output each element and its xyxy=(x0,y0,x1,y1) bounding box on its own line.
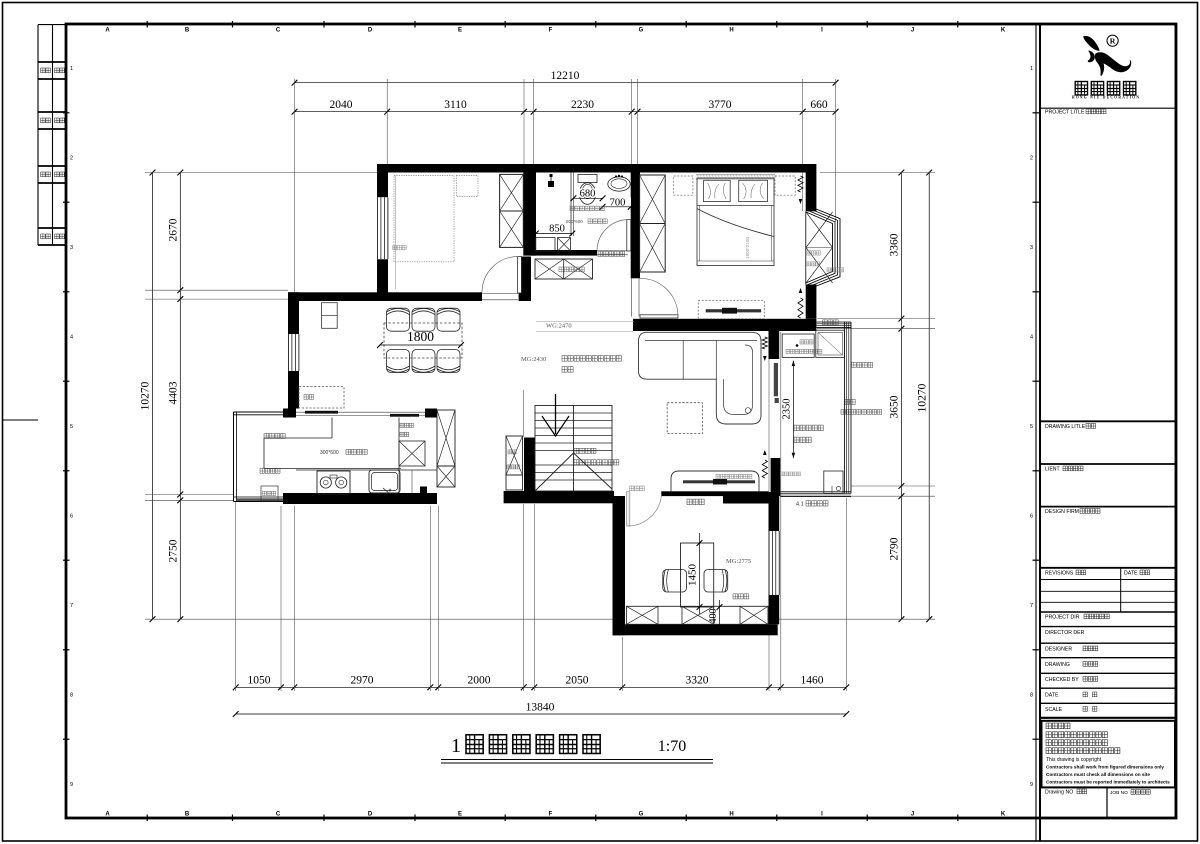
svg-text:4: 4 xyxy=(70,335,73,341)
svg-text:DESIGNER: DESIGNER xyxy=(1045,647,1072,653)
svg-text:DESIGN FIRM: DESIGN FIRM xyxy=(1045,509,1079,515)
svg-text:I: I xyxy=(821,812,823,818)
svg-text:3360: 3360 xyxy=(889,233,901,256)
svg-text:10270: 10270 xyxy=(140,381,152,410)
svg-text:1800: 1800 xyxy=(407,329,434,344)
svg-text:680: 680 xyxy=(580,189,596,200)
svg-text:3770: 3770 xyxy=(709,99,732,111)
svg-text:DATE: DATE xyxy=(1124,571,1138,577)
svg-text:5: 5 xyxy=(1030,424,1033,430)
svg-text:G: G xyxy=(639,812,644,818)
svg-text:1: 1 xyxy=(70,66,73,72)
svg-text:DATE: DATE xyxy=(1045,693,1059,699)
svg-text:4.1: 4.1 xyxy=(796,502,804,508)
svg-text:PROJECT DIR: PROJECT DIR xyxy=(1045,615,1080,621)
svg-text:3: 3 xyxy=(70,245,73,251)
svg-text:D: D xyxy=(368,812,373,818)
svg-text:7: 7 xyxy=(70,603,73,609)
svg-text:2: 2 xyxy=(1030,156,1033,162)
svg-text:1450: 1450 xyxy=(687,564,699,587)
svg-text:DRAWING LITLE: DRAWING LITLE xyxy=(1045,424,1086,430)
svg-text:1: 1 xyxy=(451,735,461,757)
svg-text:F: F xyxy=(549,28,553,34)
svg-text:A: A xyxy=(105,812,110,818)
svg-text:1800*2100: 1800*2100 xyxy=(745,237,750,259)
svg-text:2000: 2000 xyxy=(468,675,491,687)
svg-text:Contractors must check all dim: Contractors must check all dimensions on… xyxy=(1046,772,1150,777)
svg-text:DRAWING: DRAWING xyxy=(1045,662,1070,668)
svg-text:H: H xyxy=(729,28,733,34)
svg-text:B: B xyxy=(185,812,190,818)
svg-text:This drawing is copyright: This drawing is copyright xyxy=(1046,757,1102,763)
svg-text:B: B xyxy=(185,28,190,34)
svg-text:Drawing NO: Drawing NO xyxy=(1045,790,1073,796)
svg-text:E: E xyxy=(458,28,462,34)
svg-text:R: R xyxy=(1110,37,1116,46)
svg-text:MG:2430: MG:2430 xyxy=(521,356,546,363)
svg-text:2: 2 xyxy=(70,156,73,162)
svg-text:K: K xyxy=(1001,28,1006,34)
svg-text:4: 4 xyxy=(1030,335,1033,341)
svg-text:10270: 10270 xyxy=(917,383,929,412)
svg-text:REVISIONS: REVISIONS xyxy=(1045,571,1074,577)
svg-text:13840: 13840 xyxy=(526,702,555,714)
svg-text:D: D xyxy=(368,28,373,34)
svg-text:4403: 4403 xyxy=(168,381,180,404)
svg-text:CHECKED BY: CHECKED BY xyxy=(1045,677,1079,683)
svg-text:7: 7 xyxy=(1030,603,1033,609)
svg-text:C: C xyxy=(276,28,281,34)
svg-text:1:70: 1:70 xyxy=(658,738,686,755)
svg-text:2750: 2750 xyxy=(168,539,180,562)
svg-text:MG:2775: MG:2775 xyxy=(726,558,751,565)
svg-text:G: G xyxy=(639,28,644,34)
svg-text:2040: 2040 xyxy=(330,99,353,111)
svg-text:JOB NO: JOB NO xyxy=(1110,790,1128,796)
svg-text:2350: 2350 xyxy=(782,399,793,420)
svg-text:6: 6 xyxy=(70,514,73,520)
svg-text:K: K xyxy=(1001,812,1006,818)
svg-text:Contractors shall work from fi: Contractors shall work from figured dime… xyxy=(1046,765,1164,770)
svg-text:8: 8 xyxy=(70,693,73,699)
svg-text:1460: 1460 xyxy=(801,675,824,687)
svg-text:3650: 3650 xyxy=(889,395,901,418)
svg-text:6: 6 xyxy=(1030,514,1033,520)
svg-text:2970: 2970 xyxy=(351,675,374,687)
svg-text:E: E xyxy=(458,812,462,818)
svg-text:HONG NIU DECORATION: HONG NIU DECORATION xyxy=(1072,96,1141,100)
svg-text:660: 660 xyxy=(810,99,828,111)
svg-text:C: C xyxy=(276,812,281,818)
svg-text:300*600: 300*600 xyxy=(320,450,339,456)
svg-text:5: 5 xyxy=(70,424,73,430)
svg-text:A: A xyxy=(105,28,110,34)
svg-text:WG:2470: WG:2470 xyxy=(546,323,572,330)
svg-text:3110: 3110 xyxy=(444,99,467,111)
svg-text:J: J xyxy=(911,28,914,34)
svg-text:2790: 2790 xyxy=(889,537,901,560)
svg-text:DIRECTOR DER: DIRECTOR DER xyxy=(1045,630,1085,636)
svg-text:8: 8 xyxy=(1030,693,1033,699)
svg-text:2670: 2670 xyxy=(168,218,180,241)
svg-text:400: 400 xyxy=(708,609,719,624)
svg-text:LIENT: LIENT xyxy=(1045,467,1061,473)
svg-text:2050: 2050 xyxy=(566,675,589,687)
svg-text:F: F xyxy=(549,812,553,818)
svg-text:9: 9 xyxy=(70,782,73,788)
svg-text:2230: 2230 xyxy=(571,99,594,111)
svg-text:PROJECT LITLE: PROJECT LITLE xyxy=(1045,110,1085,116)
svg-text:I: I xyxy=(821,28,823,34)
svg-text:J: J xyxy=(911,812,914,818)
svg-text:800*600: 800*600 xyxy=(566,219,583,224)
svg-text:9: 9 xyxy=(1030,782,1033,788)
svg-text:850: 850 xyxy=(549,224,565,235)
svg-text:H: H xyxy=(729,812,733,818)
svg-text:Contractors must be reported i: Contractors must be reported immediately… xyxy=(1046,780,1170,785)
svg-text:12210: 12210 xyxy=(551,70,580,82)
svg-text:3: 3 xyxy=(1030,245,1033,251)
svg-text:3320: 3320 xyxy=(686,675,709,687)
svg-text:SCALE: SCALE xyxy=(1045,707,1063,713)
svg-text:1: 1 xyxy=(1030,66,1033,72)
svg-text:1050: 1050 xyxy=(248,675,271,687)
